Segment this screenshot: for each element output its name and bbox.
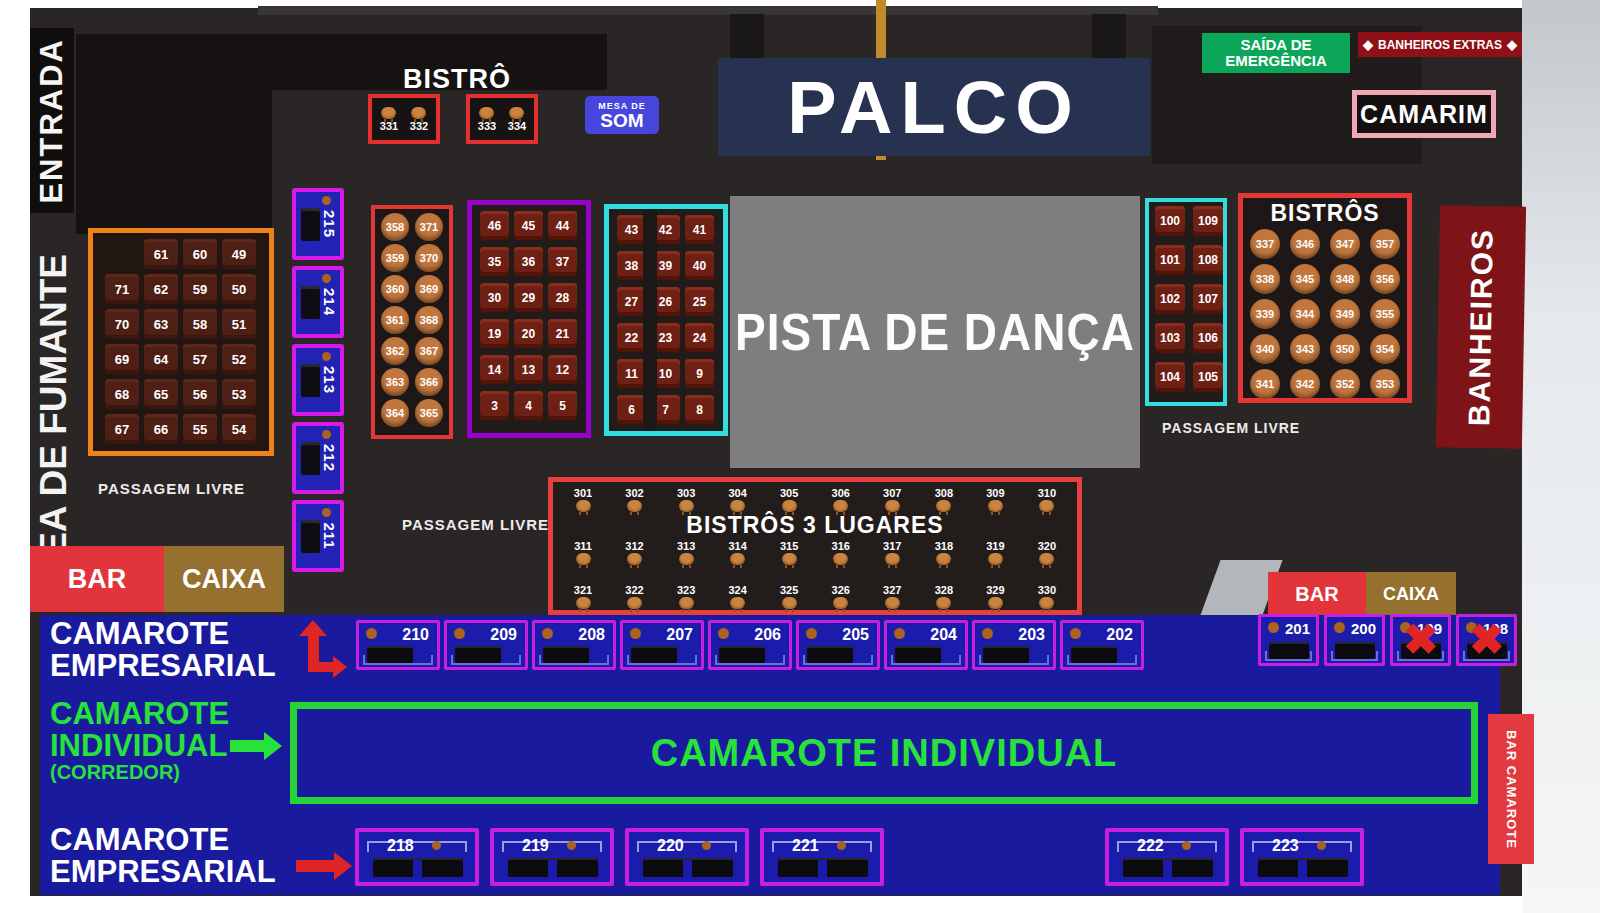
table-367[interactable]: 367	[415, 337, 443, 365]
box-number: 205	[842, 626, 869, 644]
seat-icon	[1269, 642, 1309, 659]
table-dot-icon	[837, 841, 846, 850]
table-64[interactable]: 64	[144, 344, 178, 374]
table-344[interactable]: 344	[1290, 299, 1320, 329]
bistros3-row: 301302303304305306307308309310	[563, 487, 1067, 512]
purple-grid: 464544353637302928192021141312345	[467, 200, 591, 438]
seat-icon	[1258, 858, 1348, 877]
table-107[interactable]: 107	[1193, 284, 1223, 314]
dance-floor-zone: PISTA DE DANÇA	[730, 196, 1140, 468]
table-28[interactable]: 28	[548, 283, 577, 312]
box-number: 223	[1272, 837, 1299, 855]
table-55[interactable]: 55	[183, 414, 217, 444]
table-69[interactable]: 69	[105, 344, 139, 374]
table-number: 319	[986, 540, 1004, 552]
box-number: 202	[1106, 626, 1133, 644]
table-304[interactable]: 304	[718, 487, 758, 512]
table-dot-icon	[322, 274, 331, 283]
box-number: 200	[1351, 620, 1376, 637]
bistro-table-icon	[782, 597, 797, 609]
table-number: 302	[625, 487, 643, 499]
table-361[interactable]: 361	[381, 306, 409, 334]
table-322[interactable]: 322	[615, 584, 655, 609]
table-371[interactable]: 371	[415, 213, 443, 241]
table-104[interactable]: 104	[1155, 362, 1185, 392]
table-345[interactable]: 345	[1290, 264, 1320, 294]
box-number: 221	[792, 837, 819, 855]
seat-icon	[455, 646, 501, 663]
table-342[interactable]: 342	[1290, 369, 1320, 399]
table-45[interactable]: 45	[514, 211, 543, 240]
seat-icon	[983, 646, 1029, 663]
camarote-214[interactable]: 214	[292, 266, 344, 338]
table-50[interactable]: 50	[222, 274, 256, 304]
business-box-line1: CAMAROTE	[50, 824, 276, 856]
bistro-table-icon	[627, 500, 642, 512]
diamond-icon: ◆	[1363, 37, 1373, 52]
camarote-210[interactable]: 210	[356, 620, 440, 670]
dressing-room-label: CAMARIM	[1360, 100, 1488, 129]
table-108[interactable]: 108	[1193, 245, 1223, 275]
table-101[interactable]: 101	[1155, 245, 1185, 275]
round-left-grid: 3583713593703603693613683623673633663643…	[371, 205, 453, 439]
table-364[interactable]: 364	[381, 399, 409, 427]
bistro-table-icon	[988, 597, 1003, 609]
camarote-203[interactable]: 203	[972, 620, 1056, 670]
bathrooms-zone: BANHEIROS	[1436, 205, 1526, 448]
table-number: 324	[728, 584, 746, 596]
bar-zone: BAR	[1268, 572, 1366, 616]
table-314[interactable]: 314	[718, 540, 758, 565]
camarote-222[interactable]: 222	[1105, 828, 1229, 886]
table-320[interactable]: 320	[1027, 540, 1067, 565]
unavailable-x-icon: ✖	[1393, 617, 1448, 663]
table-54[interactable]: 54	[222, 414, 256, 444]
table-dot-icon	[567, 841, 576, 850]
box-bar-zone: BAR CAMAROTE	[1488, 714, 1534, 864]
box-number: 215	[321, 210, 338, 238]
individual-box-line3: (CORREDOR)	[50, 762, 229, 783]
table-324[interactable]: 324	[718, 584, 758, 609]
camarote-207[interactable]: 207	[620, 620, 704, 670]
bistro-table-icon	[479, 107, 494, 119]
table-100[interactable]: 100	[1155, 206, 1185, 236]
camarote-202[interactable]: 202	[1060, 620, 1144, 670]
table-27[interactable]: 27	[617, 287, 646, 316]
table-dot-icon	[630, 628, 641, 639]
table-number: 303	[677, 487, 695, 499]
table-338[interactable]: 338	[1250, 264, 1280, 294]
seat-icon	[301, 520, 320, 553]
camarote-206[interactable]: 206	[708, 620, 792, 670]
seat-icon	[301, 364, 320, 397]
table-number: 330	[1038, 584, 1056, 596]
camarote-198[interactable]: 198✖	[1456, 614, 1517, 666]
seat-icon	[631, 646, 677, 663]
table-331[interactable]: 331	[380, 107, 398, 132]
table-369[interactable]: 369	[415, 275, 443, 303]
camarote-top-row: 210209208207206205204203202	[356, 620, 1144, 670]
unavailable-x-icon: ✖	[1459, 617, 1514, 663]
table-328[interactable]: 328	[924, 584, 964, 609]
sound-desk-label-small: MESA DE	[598, 101, 646, 111]
table-319[interactable]: 319	[975, 540, 1015, 565]
table-358[interactable]: 358	[381, 213, 409, 241]
table-dot-icon	[1268, 622, 1279, 633]
floor-dark-patch	[76, 34, 272, 234]
table-307[interactable]: 307	[872, 487, 912, 512]
table-353[interactable]: 353	[1370, 369, 1400, 399]
table-63[interactable]: 63	[144, 309, 178, 339]
table-363[interactable]: 363	[381, 368, 409, 396]
bistro-table-icon	[730, 500, 745, 512]
table-370[interactable]: 370	[415, 244, 443, 272]
table-312[interactable]: 312	[615, 540, 655, 565]
table-348[interactable]: 348	[1330, 264, 1360, 294]
table-109[interactable]: 109	[1193, 206, 1223, 236]
table-311[interactable]: 311	[563, 540, 603, 565]
table-365[interactable]: 365	[415, 399, 443, 427]
table-51[interactable]: 51	[222, 309, 256, 339]
seat-icon	[807, 646, 853, 663]
table-number: 305	[780, 487, 798, 499]
free-passage-label: PASSAGEM LIVRE	[1162, 420, 1300, 436]
box-number: 219	[522, 837, 549, 855]
bar-label: BAR	[68, 564, 127, 595]
table-number: 316	[832, 540, 850, 552]
box-number: 206	[754, 626, 781, 644]
camarote-221[interactable]: 221	[760, 828, 884, 886]
table-12[interactable]: 12	[548, 355, 577, 384]
table-38[interactable]: 38	[617, 251, 646, 280]
box-number: 208	[578, 626, 605, 644]
box-number: 214	[321, 288, 338, 316]
camarote-204[interactable]: 204	[884, 620, 968, 670]
bistro-table-icon	[381, 107, 396, 119]
table-52[interactable]: 52	[222, 344, 256, 374]
seat-icon	[543, 646, 589, 663]
table-20[interactable]: 20	[514, 319, 543, 348]
table-11[interactable]: 11	[617, 359, 646, 388]
table-8[interactable]: 8	[685, 395, 714, 424]
bistro-table-icon	[885, 553, 900, 565]
table-dot-icon	[542, 628, 553, 639]
table-dot-icon	[432, 841, 441, 850]
empty-slot	[105, 239, 139, 269]
table-dot-icon	[366, 628, 377, 639]
camarote-200[interactable]: 200	[1324, 614, 1385, 666]
table-number: 306	[832, 487, 850, 499]
bistros3-row: 311312313314315316317318319320	[563, 540, 1067, 565]
table-19[interactable]: 19	[480, 319, 509, 348]
table-316[interactable]: 316	[821, 540, 861, 565]
table-dot-icon	[718, 628, 729, 639]
table-308[interactable]: 308	[924, 487, 964, 512]
dressing-room-zone: CAMARIM	[1352, 90, 1496, 138]
table-number: 310	[1038, 487, 1056, 499]
table-62[interactable]: 62	[144, 274, 178, 304]
table-106[interactable]: 106	[1193, 323, 1223, 353]
table-3[interactable]: 3	[480, 391, 509, 420]
table-dot-icon	[1182, 841, 1191, 850]
table-49[interactable]: 49	[222, 239, 256, 269]
table-number: 312	[625, 540, 643, 552]
table-350[interactable]: 350	[1330, 334, 1360, 364]
table-343[interactable]: 343	[1290, 334, 1320, 364]
bar-zone: BAR	[30, 546, 164, 612]
table-30[interactable]: 30	[480, 283, 509, 312]
bistro-table-icon	[411, 107, 426, 119]
table-dot-icon	[322, 508, 331, 517]
seat-icon	[301, 208, 320, 241]
box-number: 207	[666, 626, 693, 644]
table-35[interactable]: 35	[480, 247, 509, 276]
table-330[interactable]: 330	[1027, 584, 1067, 609]
table-37[interactable]: 37	[548, 247, 577, 276]
bistro-table-icon	[679, 597, 694, 609]
seat-icon	[508, 858, 598, 877]
table-number: 317	[883, 540, 901, 552]
table-66[interactable]: 66	[144, 414, 178, 444]
table-360[interactable]: 360	[381, 275, 409, 303]
seat-icon	[1071, 646, 1117, 663]
table-346[interactable]: 346	[1290, 229, 1320, 259]
camarote-201[interactable]: 201	[1258, 614, 1319, 666]
bistro-table-icon	[627, 553, 642, 565]
table-334[interactable]: 334	[508, 107, 526, 132]
emergency-exit-label-2: EMERGÊNCIA	[1225, 53, 1327, 70]
bistros-3-seats-zone: 301302303304305306307308309310 BISTRÔS 3…	[548, 477, 1082, 615]
table-5[interactable]: 5	[548, 391, 577, 420]
table-29[interactable]: 29	[514, 283, 543, 312]
table-61[interactable]: 61	[144, 239, 178, 269]
table-dot-icon	[454, 628, 465, 639]
table-60[interactable]: 60	[183, 239, 217, 269]
camarote-208[interactable]: 208	[532, 620, 616, 670]
camarote-209[interactable]: 209	[444, 620, 528, 670]
table-325[interactable]: 325	[769, 584, 809, 609]
table-352[interactable]: 352	[1330, 369, 1360, 399]
bistro-table-icon	[679, 500, 694, 512]
table-317[interactable]: 317	[872, 540, 912, 565]
table-24[interactable]: 24	[685, 323, 714, 352]
box-bar-label: BAR CAMAROTE	[1502, 730, 1520, 849]
business-box-line2: EMPRESARIAL	[50, 650, 276, 682]
table-339[interactable]: 339	[1250, 299, 1280, 329]
bistro-table-icon	[833, 500, 848, 512]
camarote-220[interactable]: 220	[625, 828, 749, 886]
bistro-table-icon	[936, 597, 951, 609]
table-53[interactable]: 53	[222, 379, 256, 409]
table-36[interactable]: 36	[514, 247, 543, 276]
table-329[interactable]: 329	[975, 584, 1015, 609]
table-323[interactable]: 323	[666, 584, 706, 609]
table-366[interactable]: 366	[415, 368, 443, 396]
individual-box-zone-label: CAMAROTE INDIVIDUAL	[651, 732, 1118, 775]
table-number: 301	[574, 487, 592, 499]
bistro-table-icon	[679, 553, 694, 565]
box-number: 203	[1018, 626, 1045, 644]
bistro-table-icon	[782, 553, 797, 565]
camarote-211[interactable]: 211	[292, 500, 344, 572]
table-349[interactable]: 349	[1330, 299, 1360, 329]
table-dot-icon	[702, 841, 711, 850]
cashier-label: CAIXA	[182, 564, 266, 595]
camarote-215[interactable]: 215	[292, 188, 344, 260]
table-326[interactable]: 326	[821, 584, 861, 609]
emergency-exit-zone: SAÍDA DE EMERGÊNCIA	[1202, 33, 1350, 73]
seat-icon	[643, 858, 733, 877]
table-57[interactable]: 57	[183, 344, 217, 374]
camarote-219[interactable]: 219	[490, 828, 614, 886]
table-318[interactable]: 318	[924, 540, 964, 565]
table-dot-icon	[806, 628, 817, 639]
bistro-table-icon	[782, 500, 797, 512]
table-309[interactable]: 309	[975, 487, 1015, 512]
bistro-table-icon	[576, 500, 591, 512]
table-357[interactable]: 357	[1370, 229, 1400, 259]
table-56[interactable]: 56	[183, 379, 217, 409]
table-67[interactable]: 67	[105, 414, 139, 444]
camarote-205[interactable]: 205	[796, 620, 880, 670]
cashier-zone: CAIXA	[164, 546, 284, 612]
table-306[interactable]: 306	[821, 487, 861, 512]
table-68[interactable]: 68	[105, 379, 139, 409]
table-303[interactable]: 303	[666, 487, 706, 512]
table-356[interactable]: 356	[1370, 264, 1400, 294]
table-103[interactable]: 103	[1155, 323, 1185, 353]
bistros-right-zone: BISTRÔS 33734634735733834534835633934434…	[1238, 193, 1412, 403]
table-44[interactable]: 44	[548, 211, 577, 240]
table-310[interactable]: 310	[1027, 487, 1067, 512]
table-341[interactable]: 341	[1250, 369, 1280, 399]
table-43[interactable]: 43	[617, 215, 646, 244]
table-dot-icon	[982, 628, 993, 639]
venue-map: ENTRADA ÁREA DE FUMANTE 6160497162595070…	[0, 0, 1600, 913]
table-59[interactable]: 59	[183, 274, 217, 304]
table-number: 327	[883, 584, 901, 596]
table-355[interactable]: 355	[1370, 299, 1400, 329]
bistro-top-box: 331332	[368, 94, 440, 144]
box-number: 218	[387, 837, 414, 855]
box-number: 213	[321, 366, 338, 394]
entrance-label: ENTRADA	[34, 38, 70, 204]
speaker-icon	[1092, 14, 1126, 58]
table-321[interactable]: 321	[563, 584, 603, 609]
bistro-table-icon	[1039, 553, 1054, 565]
business-box-line2: EMPRESARIAL	[50, 856, 276, 888]
diamond-icon: ◆	[1507, 37, 1517, 52]
cashier-label: CAIXA	[1383, 584, 1439, 605]
table-368[interactable]: 368	[415, 306, 443, 334]
individual-box-label: CAMAROTE INDIVIDUAL (CORREDOR)	[50, 698, 229, 783]
blue-column: 215214213212211	[292, 188, 352, 578]
table-362[interactable]: 362	[381, 337, 409, 365]
table-354[interactable]: 354	[1370, 334, 1400, 364]
bistro-table-icon	[576, 553, 591, 565]
business-box-line1: CAMAROTE	[50, 618, 276, 650]
bistro-top-label: BISTRÔ	[387, 64, 527, 95]
table-number: 320	[1038, 540, 1056, 552]
sound-desk-label: SOM	[600, 111, 643, 130]
individual-box-line2: INDIVIDUAL	[50, 730, 229, 762]
camarote-218[interactable]: 218	[355, 828, 479, 886]
seat-icon	[1335, 642, 1375, 659]
free-passage-label: PASSAGEM LIVRE	[402, 516, 549, 533]
table-40[interactable]: 40	[685, 251, 714, 280]
table-25[interactable]: 25	[685, 287, 714, 316]
seat-icon	[895, 646, 941, 663]
table-102[interactable]: 102	[1155, 284, 1185, 314]
table-333[interactable]: 333	[478, 107, 496, 132]
table-9[interactable]: 9	[685, 359, 714, 388]
table-21[interactable]: 21	[548, 319, 577, 348]
bistro-table-icon	[509, 107, 524, 119]
camarote-223[interactable]: 223	[1240, 828, 1364, 886]
table-46[interactable]: 46	[480, 211, 509, 240]
table-315[interactable]: 315	[769, 540, 809, 565]
individual-box-zone[interactable]: CAMAROTE INDIVIDUAL	[290, 702, 1478, 804]
table-105[interactable]: 105	[1193, 362, 1223, 392]
table-65[interactable]: 65	[144, 379, 178, 409]
bathrooms-label: BANHEIROS	[1462, 228, 1499, 427]
table-6[interactable]: 6	[617, 395, 646, 424]
camarote-213[interactable]: 213	[292, 344, 344, 416]
camarote-199[interactable]: 199✖	[1390, 614, 1451, 666]
table-number: 318	[935, 540, 953, 552]
box-number: 204	[930, 626, 957, 644]
table-number: 307	[883, 487, 901, 499]
table-340[interactable]: 340	[1250, 334, 1280, 364]
table-70[interactable]: 70	[105, 309, 139, 339]
table-347[interactable]: 347	[1330, 229, 1360, 259]
extra-bathrooms-zone: ◆ BANHEIROS EXTRAS ◆	[1358, 32, 1522, 57]
table-332[interactable]: 332	[410, 107, 428, 132]
bistro-table-icon	[730, 597, 745, 609]
entrance-zone: ENTRADA	[30, 28, 74, 213]
table-14[interactable]: 14	[480, 355, 509, 384]
camarote-212[interactable]: 212	[292, 422, 344, 494]
seat-icon	[367, 646, 413, 663]
table-301[interactable]: 301	[563, 487, 603, 512]
bistro-top-box: 333334	[466, 94, 538, 144]
red-arrow-icon	[296, 860, 352, 872]
table-dot-icon	[894, 628, 905, 639]
table-4[interactable]: 4	[514, 391, 543, 420]
table-305[interactable]: 305	[769, 487, 809, 512]
table-327[interactable]: 327	[872, 584, 912, 609]
green-arrow-icon	[230, 740, 282, 752]
table-313[interactable]: 313	[666, 540, 706, 565]
free-passage-label: PASSAGEM LIVRE	[98, 480, 245, 497]
table-302[interactable]: 302	[615, 487, 655, 512]
table-58[interactable]: 58	[183, 309, 217, 339]
stage-label: PALCO	[787, 65, 1081, 150]
table-359[interactable]: 359	[381, 244, 409, 272]
table-number: 314	[728, 540, 746, 552]
table-41[interactable]: 41	[685, 215, 714, 244]
emergency-exit-label-1: SAÍDA DE	[1240, 37, 1311, 54]
table-337[interactable]: 337	[1250, 229, 1280, 259]
table-71[interactable]: 71	[105, 274, 139, 304]
table-22[interactable]: 22	[617, 323, 646, 352]
smoking-grid: 6160497162595070635851696457526865565367…	[88, 228, 274, 456]
table-13[interactable]: 13	[514, 355, 543, 384]
cashier-zone: CAIXA	[1366, 572, 1456, 616]
box-number: 211	[321, 522, 338, 549]
stage-zone: PALCO	[718, 58, 1150, 156]
box-number: 201	[1285, 620, 1310, 637]
